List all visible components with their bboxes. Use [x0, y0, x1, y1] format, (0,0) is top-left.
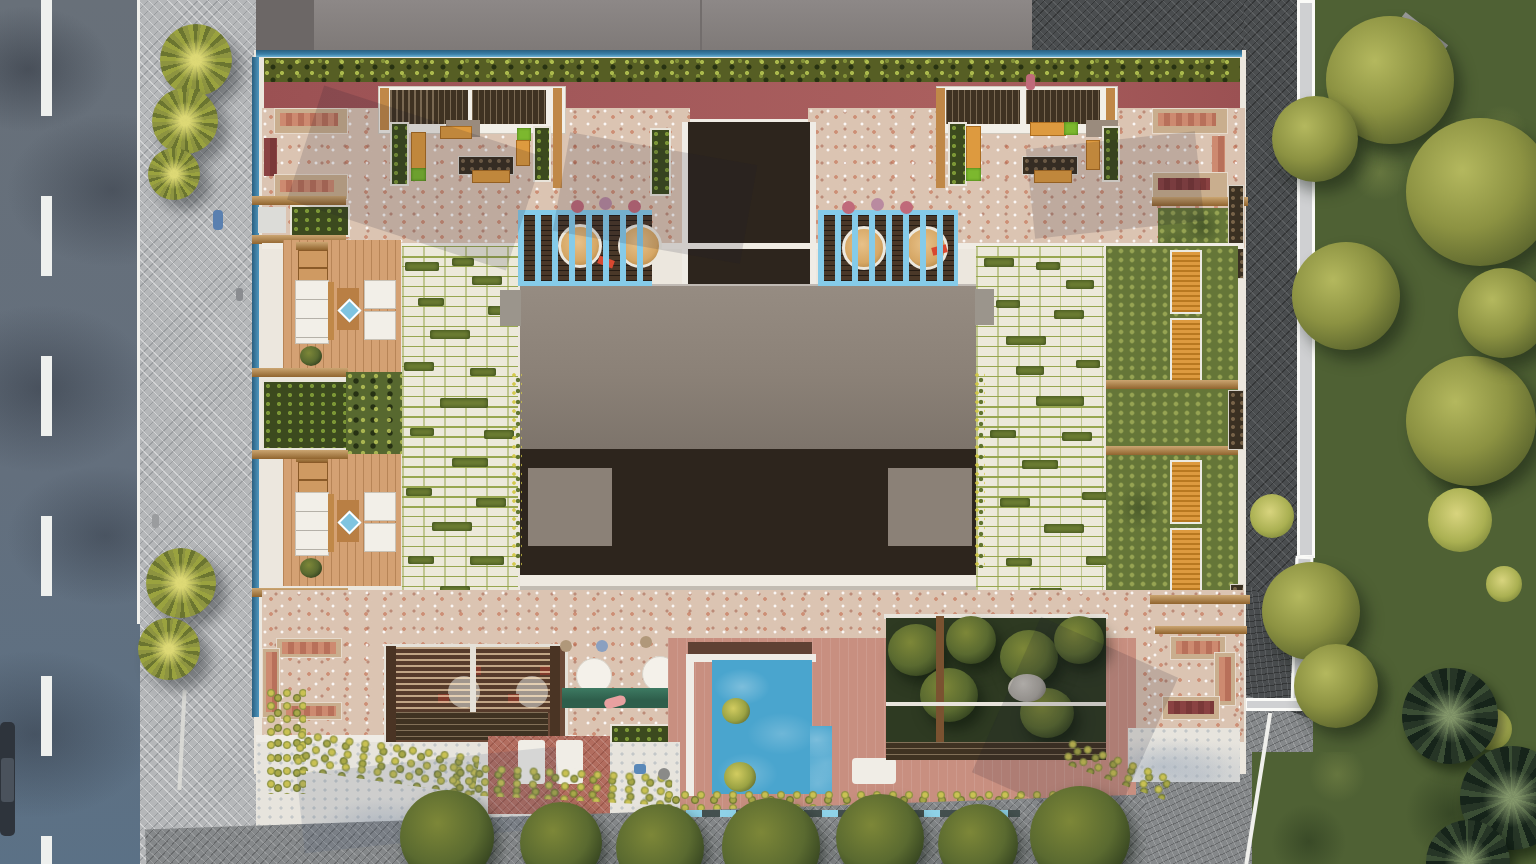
palm-tree [148, 148, 200, 200]
path-right [1244, 0, 1302, 650]
potted-plant [300, 558, 322, 578]
grass-patch [984, 258, 1014, 267]
pergola-louvre [1026, 90, 1100, 124]
armchair [364, 523, 396, 552]
road [0, 0, 140, 864]
grass-patch [405, 262, 439, 271]
shadow-overlay [1026, 131, 1204, 238]
bush-square [346, 372, 402, 454]
bench-cushion [264, 138, 277, 176]
bench-cushion [282, 642, 336, 654]
blue-screen-fence [818, 210, 958, 286]
paver-courtyard-right [976, 246, 1104, 596]
grass-patch [1036, 396, 1084, 406]
park-tree [1292, 242, 1400, 350]
grass-patch [1000, 498, 1030, 507]
lounger-head [296, 242, 328, 250]
pavilion-base [520, 575, 976, 586]
wood-beam [1155, 626, 1247, 634]
grass-patch [1044, 524, 1084, 533]
grass-patch [990, 430, 1016, 438]
grass-patch [406, 488, 432, 496]
planter-bright [1064, 122, 1078, 135]
wood-beam [1150, 595, 1250, 604]
lane-dash-line [41, 0, 52, 864]
paving-pad [258, 207, 286, 233]
pool-lounger [852, 758, 896, 784]
bench-cushion [1168, 701, 1214, 714]
grass-patch [1062, 432, 1092, 441]
grass-patch [476, 498, 506, 507]
park-tree [1406, 356, 1536, 486]
person [236, 288, 243, 301]
grass-patch [418, 298, 444, 306]
pavilion-roof [520, 284, 976, 449]
roof-seam [700, 0, 702, 52]
sun-lounger [1170, 528, 1202, 592]
palm-tree [138, 618, 200, 680]
pergola-louvre [946, 90, 1020, 124]
grass-patch [404, 362, 434, 371]
person [560, 640, 572, 652]
wood-beam [252, 450, 348, 459]
grass-patch [484, 430, 514, 439]
grass-patch [1036, 262, 1060, 270]
grass-patch [452, 458, 488, 467]
fence-rail [518, 281, 652, 286]
grass-patch [408, 556, 434, 564]
wood-beam [1106, 380, 1238, 389]
grass-patch [470, 368, 496, 376]
adjacent-roof-shadow [256, 0, 314, 52]
fence-rail [818, 281, 958, 286]
bench-orange [966, 126, 981, 170]
car-roof [1, 758, 14, 802]
round-bush [1428, 488, 1492, 552]
climbing-plants [974, 372, 985, 568]
perimeter-hedge [264, 58, 1240, 82]
park-tree [1272, 96, 1358, 182]
roof-unit [500, 290, 521, 326]
park-tree [1294, 644, 1378, 728]
grass-patch [1016, 366, 1044, 375]
armchair [364, 492, 396, 521]
person [1026, 74, 1035, 90]
grass-patch [1076, 360, 1100, 368]
grass-patch [440, 398, 488, 408]
person [658, 768, 670, 780]
person [842, 201, 855, 214]
bench-cushion [1158, 113, 1216, 126]
armchair [364, 280, 396, 309]
swimming-pool-ext [810, 726, 832, 794]
bench-orange [1030, 122, 1066, 136]
adjacent-roof [256, 0, 1032, 52]
roof-hatch [888, 468, 972, 546]
planter [948, 122, 967, 186]
grass-patch [1054, 310, 1084, 319]
person [596, 640, 608, 652]
pergola-post [553, 88, 562, 188]
round-bush [1250, 494, 1294, 538]
pool-toy [634, 764, 646, 774]
grass-patch [410, 428, 434, 436]
planter-bright [966, 168, 981, 181]
deck-lounger [298, 462, 328, 480]
pergola-post [550, 646, 560, 742]
potted-plant [300, 346, 322, 366]
sofa [295, 492, 329, 556]
fence-rail [818, 210, 958, 215]
sun-lounger [1170, 460, 1202, 524]
grass-patch [472, 276, 502, 285]
bench-cushion [1219, 657, 1231, 701]
sun-lounger [1170, 250, 1202, 314]
core-wall [810, 122, 816, 286]
grass-patch [432, 522, 472, 531]
wood-beam [1106, 446, 1238, 455]
sun-lounger [1170, 318, 1202, 382]
grass-patch [996, 300, 1020, 308]
grass-patch [1066, 280, 1094, 289]
pergola-post [386, 646, 396, 742]
palm-tree [152, 88, 218, 154]
parapet-top [256, 50, 1242, 57]
wood-beam [252, 368, 348, 377]
grass-patch [1082, 492, 1108, 500]
garden-fence [936, 616, 944, 746]
garden-tree [920, 668, 978, 722]
dark-planter [1228, 390, 1244, 450]
pool-coping [686, 654, 694, 796]
climbing-plants [511, 372, 522, 568]
person [640, 636, 652, 648]
palm-tree [160, 24, 232, 96]
armchair [364, 311, 396, 340]
hedge-box [262, 380, 348, 450]
garden-tree [946, 616, 996, 664]
grass-patch [470, 556, 504, 565]
dark-palm [1402, 668, 1498, 764]
grass-patch [1022, 460, 1058, 469]
sofa-frame [328, 494, 334, 552]
aerial-render-canvas [0, 0, 1536, 864]
round-bush [1486, 566, 1522, 602]
pergola-louvre [472, 90, 546, 124]
pool-plant [722, 698, 750, 724]
sofa [295, 280, 329, 344]
grass-patch [1006, 558, 1032, 566]
roof-unit [975, 289, 994, 325]
person [871, 198, 884, 211]
parapet-left [252, 57, 259, 717]
sofa-frame [328, 282, 334, 340]
person [900, 201, 913, 214]
roof-hatch [528, 468, 612, 546]
pool-plant [724, 762, 756, 792]
person [213, 210, 223, 230]
deck-lounger [298, 250, 328, 268]
person [152, 514, 159, 528]
pergola-post [936, 88, 945, 188]
grass-patch [1006, 336, 1046, 345]
palm-tree [146, 548, 216, 618]
grass-patch [430, 330, 470, 339]
